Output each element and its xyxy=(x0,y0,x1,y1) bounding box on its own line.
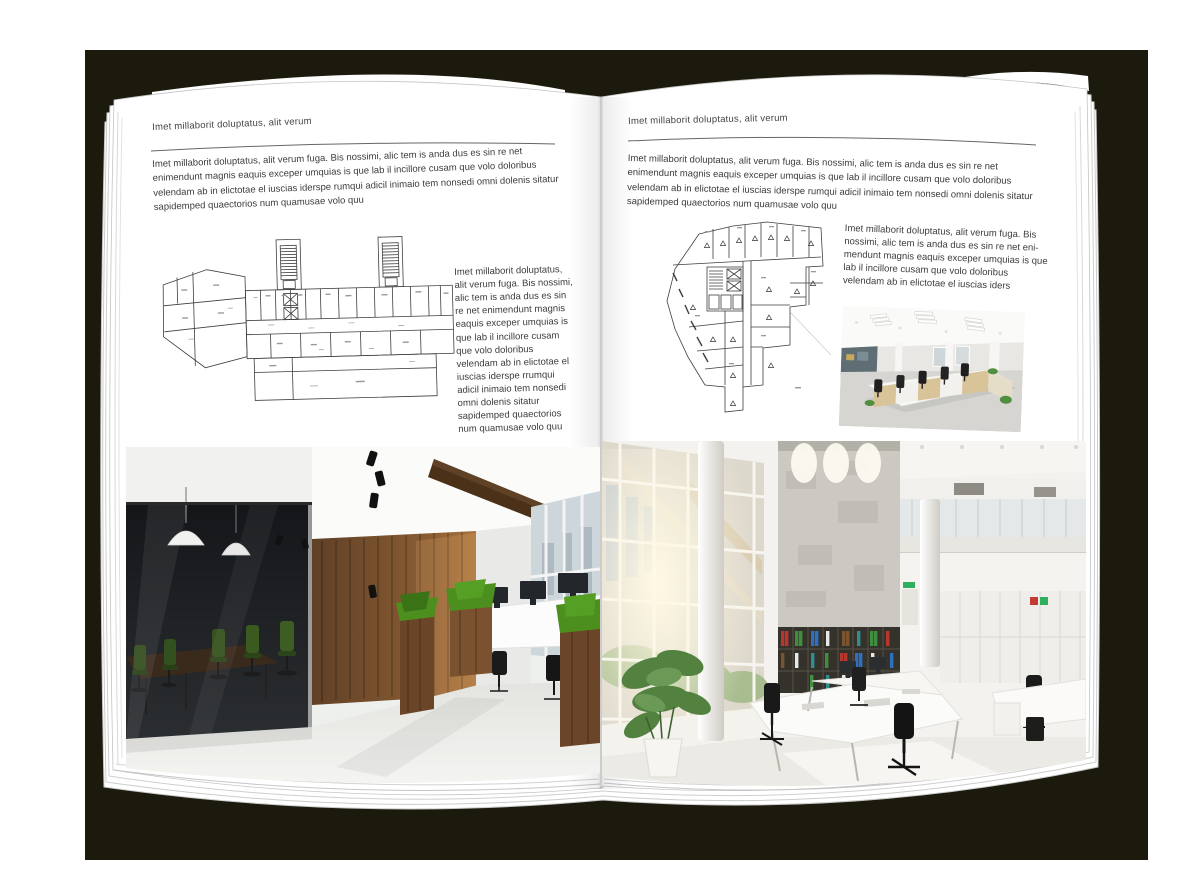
column xyxy=(920,499,940,667)
right-intro-paragraph: Imet millaborit doluptatus, alit verum f… xyxy=(627,152,1044,218)
downlight-glows xyxy=(791,443,881,483)
far-lounge-area xyxy=(841,345,878,376)
floor-plan-linework xyxy=(161,235,455,403)
fire-safety-sign xyxy=(1030,597,1038,605)
right-floor-plan xyxy=(643,217,835,423)
left-floor-plan xyxy=(156,232,461,416)
floor-plan-linework xyxy=(667,222,831,412)
first-aid-sign xyxy=(1040,597,1048,605)
right-photo-small-workstations xyxy=(839,306,1025,432)
right-side-text: Imet millaborit doluptatus, alit verum f… xyxy=(843,222,1053,295)
right-photo-bright-office xyxy=(602,441,1086,803)
column xyxy=(698,441,724,741)
exit-sign xyxy=(903,582,915,588)
right-header-rule xyxy=(627,132,1039,150)
left-side-text: Imet millaborit doluptatus, alit verum f… xyxy=(454,263,578,437)
waste-bin xyxy=(1026,717,1044,741)
left-photo-dark-office xyxy=(126,447,600,797)
magazine-spread-mockup: Imet millaborit doluptatus, alit verum I… xyxy=(0,0,1200,891)
